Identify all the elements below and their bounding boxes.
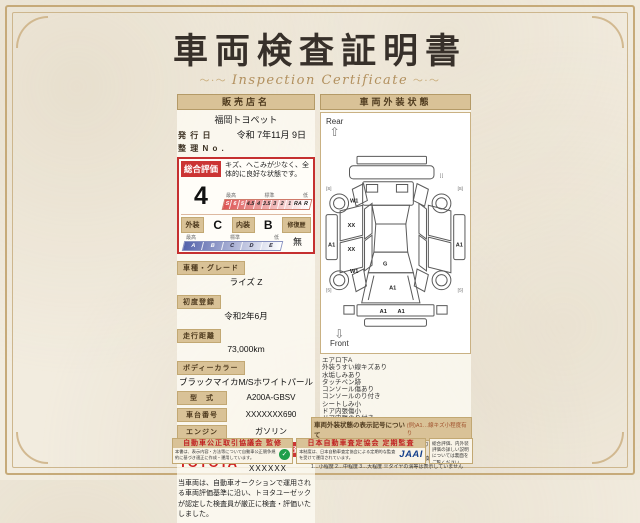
grade-scale: 最高 標準 低 A B C D E [181, 234, 284, 250]
jaai-logo: JAAI [399, 449, 423, 460]
repair-history-value: 無 [284, 234, 311, 250]
marker-hood-a1: A1 [389, 286, 396, 292]
overall-rating-box: 総合評価 キズ、へこみが少なく、全体的に良好な状態です。 4 最高 標準 低 S… [177, 157, 315, 254]
marker-front-w1: W1 [350, 269, 358, 275]
field-model-grade: 車種・グレード ライズ Z [177, 257, 315, 288]
exterior-condition-header: 車両外装状態 [320, 94, 471, 110]
inspector-name: XXXXXX [249, 464, 287, 473]
rating-scale-cell: R [301, 200, 311, 209]
legend-line: 1…小程度 2…中程度 3…大程度 ※タイヤの溝等は表示していません [311, 464, 472, 471]
scale-label-best: 最高 [226, 192, 236, 199]
rating-scale: 最高 標準 低 S 6 5 4.5 4 3.5 3 2 1 RA R [223, 192, 311, 211]
field-label: 車種・グレード [177, 261, 245, 275]
condition-note: 水垢しみあり [322, 372, 469, 379]
field-value: ガソリン [227, 426, 315, 437]
marker-bracket-rear-right: [S] [458, 186, 463, 191]
legend-title: 車両外装状態の表示記号について [314, 419, 407, 439]
grade-scale-cell: B [202, 242, 223, 250]
grade-label-low: 低 [274, 234, 279, 241]
marker-bumper-a1-left: A1 [380, 309, 387, 315]
marker-door-xx-upper: XX [348, 223, 356, 229]
marker-rear-w1: W1 [350, 198, 358, 204]
field-label: エンジン [177, 425, 227, 439]
exterior-label: 外装 [181, 217, 204, 233]
grade-scale-cells: A B C D E [182, 241, 283, 251]
corner-flourish [592, 432, 624, 464]
marker-bumper-a1-right: A1 [398, 309, 405, 315]
grade-label-standard: 標準 [230, 234, 240, 241]
grade-scale-cell: E [261, 242, 282, 250]
condition-note: 外装うすい線キズあり [322, 364, 469, 371]
issue-date-value: 令和 7年11月 9日 [237, 128, 306, 141]
certificate-subtitle: Inspection Certificate [0, 72, 640, 88]
inspection-disclaimer: 当車両は、自動車オークションで運用される車両評価基準に沿い、トヨタユーゼックが認… [177, 479, 315, 523]
jaai-audit-box: 日本自動車査定協会 定期監査 本制度は、日本自動車査定協会による定期的な監査を受… [296, 438, 426, 464]
field-label: 走行距離 [177, 329, 221, 343]
fair-trade-emblem-icon: ✓ [279, 449, 290, 460]
condition-note: シートしみ小 [322, 401, 469, 408]
field-label: 型 式 [177, 391, 227, 405]
fair-trade-council-box: 自動車公正取引協議会 監修 本書は、表示内容・方法等について自動車公正競争規約に… [172, 438, 293, 464]
grade-label-best: 最高 [186, 234, 196, 241]
reference-number-label: 整 理 N o . [178, 143, 225, 154]
field-value: ブラックマイカM/Sホワイトパール [177, 376, 315, 388]
rating-scale-cells: S 6 5 4.5 4 3.5 3 2 1 RA R [222, 199, 313, 210]
field-value: ライズ Z [177, 276, 315, 288]
corner-flourish [16, 432, 48, 464]
interior-grade: B [255, 217, 283, 233]
dealer-name-value: 福岡トヨペット [177, 113, 315, 126]
fair-trade-council-title: 自動車公正取引協議会 監修 [173, 439, 292, 448]
field-first-registration: 初度登録 令和2年6月 [177, 291, 315, 322]
condition-note: タッチペン跡 [322, 379, 469, 386]
grade-scale-cell: A [183, 242, 204, 250]
fair-trade-council-text: 本書は、表示内容・方法等について自動車公正競争規約に基づき適正に作成・運用してい… [175, 449, 277, 460]
interior-label: 内装 [232, 217, 255, 233]
car-diagram-box: Rear ⇧ ⇩ Front [320, 112, 471, 354]
field-engine: エンジン ガソリン [177, 425, 315, 439]
condition-note: コンソールのり付き [322, 393, 469, 400]
grade-scale-cell: D [241, 242, 262, 250]
field-value: XXXXXXX690 [227, 410, 315, 419]
legend-example: (例)A1…線キズ小程度有り [407, 421, 469, 437]
jaai-audit-title: 日本自動車査定協会 定期監査 [297, 439, 425, 448]
scale-label-low: 低 [303, 192, 308, 199]
grade-scale-cell: C [222, 242, 243, 250]
field-label: ボディーカラー [177, 361, 245, 375]
marker-glass-g: G [383, 261, 388, 267]
certification-footer: 自動車公正取引協議会 監修 本書は、表示内容・方法等について自動車公正競争規約に… [172, 438, 473, 464]
scale-label-standard: 標準 [264, 192, 274, 199]
reference-number-row: 整 理 N o . [177, 143, 315, 154]
field-value: 令和2年6月 [177, 310, 315, 322]
overall-rating-label: 総合評価 [181, 161, 221, 177]
exterior-grade: C [204, 217, 232, 233]
marker-bracket-top-right: [ ] [440, 173, 444, 178]
back-side-note: 総合評価、内外装評価の詳しい説明については裏面をご覧ください。 [432, 441, 470, 464]
field-chassis-number: 車台番号 XXXXXXX690 [177, 408, 315, 422]
inspection-certificate-page: { "page": { "title": "車両検査証明書", "subtitl… [0, 0, 640, 480]
issue-date-row: 発 行 日 令和 7年11月 9日 [177, 128, 315, 141]
field-value: A200A-GBSV [227, 393, 315, 402]
field-label: 初度登録 [177, 295, 221, 309]
field-mileage: 走行距離 73,000km [177, 325, 315, 354]
field-model-code: 型 式 A200A-GBSV [177, 391, 315, 405]
field-body-color: ボディーカラー ブラックマイカM/Sホワイトパール [177, 357, 315, 388]
issue-date-label: 発 行 日 [178, 130, 211, 141]
field-value: 73,000km [177, 344, 315, 354]
certificate-title: 車両検査証明書 [0, 23, 640, 74]
marker-bracket-front-left: [S] [326, 288, 331, 293]
field-label: 車台番号 [177, 408, 227, 422]
dealer-name-header: 販売店名 [177, 94, 315, 110]
back-side-note-box: 総合評価、内外装評価の詳しい説明については裏面をご覧ください。 [429, 438, 473, 464]
marker-bracket-front-right: [S] [458, 288, 463, 293]
marker-door-xx-lower: XX [348, 247, 356, 253]
overall-rating-value: 4 [181, 181, 221, 211]
marker-right-a1: A1 [456, 243, 463, 249]
exterior-condition-column: 車両外装状態 Rear ⇧ ⇩ Front [320, 94, 471, 430]
unfolded-car-diagram: W1 W1 XX XX A1 A1 G A1 A1 A1 [ ] [S] [S]… [324, 132, 467, 346]
overall-rating-comment: キズ、へこみが少なく、全体的に良好な状態です。 [223, 161, 311, 180]
repair-history-label: 修復歴 [282, 217, 311, 233]
jaai-audit-text: 本制度は、日本自動車査定協会による定期的な監査を受けて運用されています。 [299, 449, 397, 460]
marker-bracket-rear-left: [S] [326, 186, 331, 191]
marker-left-a1: A1 [328, 243, 335, 249]
